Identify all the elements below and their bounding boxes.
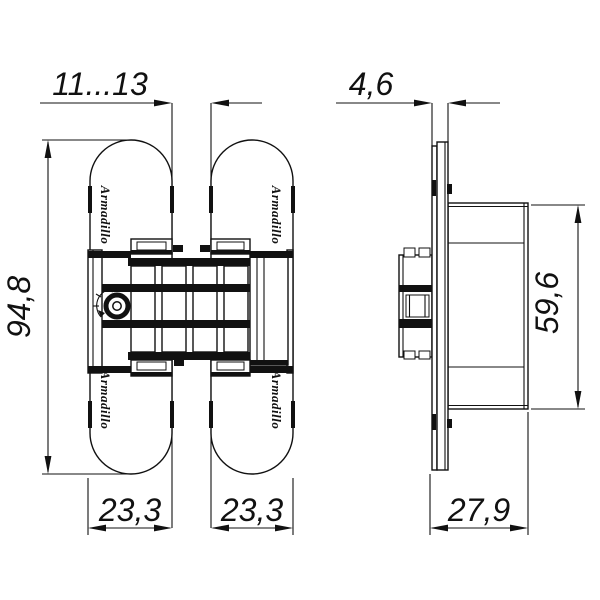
dim-label-plate-thickness: 4,6 bbox=[349, 66, 394, 102]
dim-label-overall-height: 94,8 bbox=[1, 276, 37, 338]
plate-clip bbox=[88, 401, 92, 428]
plate-clip bbox=[432, 180, 436, 196]
plate-clip bbox=[291, 401, 295, 428]
plate-clip bbox=[447, 419, 452, 428]
plate-clip bbox=[88, 186, 92, 213]
brand-text-bottom-right: Armadillo bbox=[269, 370, 284, 430]
plate-clip bbox=[209, 401, 213, 428]
plate-clip bbox=[432, 414, 436, 430]
brand-text-bottom-left: Armadillo bbox=[98, 370, 113, 430]
side-view bbox=[399, 103, 528, 470]
dim-label-door-gap: 11...13 bbox=[52, 66, 148, 102]
technical-drawing: Armadillo Armadillo Armadillo Armadillo bbox=[0, 0, 600, 600]
front-view: Armadillo Armadillo Armadillo Armadillo bbox=[88, 103, 295, 528]
side-mechanism-block bbox=[399, 248, 432, 359]
dimension-body-height: 59,6 bbox=[529, 205, 585, 409]
dim-label-left-plate-width: 23,3 bbox=[98, 492, 161, 528]
dimension-door-gap: 11...13 bbox=[40, 66, 262, 106]
dim-label-right-plate-width: 23,3 bbox=[220, 492, 283, 528]
hinge-drawing-canvas: Armadillo Armadillo Armadillo Armadillo bbox=[0, 0, 600, 600]
plate-clip bbox=[209, 186, 213, 213]
brand-text-top-left: Armadillo bbox=[98, 185, 113, 245]
dim-label-body-depth: 27,9 bbox=[447, 492, 510, 528]
dimension-right-plate-width: 23,3 bbox=[211, 478, 293, 535]
plate-clip bbox=[170, 401, 174, 428]
dimension-plate-thickness: 4,6 bbox=[336, 66, 500, 106]
plate-clip bbox=[447, 184, 452, 194]
plate-clip bbox=[291, 186, 295, 213]
side-body bbox=[448, 203, 528, 409]
brand-text-top-right: Armadillo bbox=[269, 185, 284, 245]
plate-clip bbox=[170, 186, 174, 213]
dimension-left-plate-width: 23,3 bbox=[88, 478, 172, 535]
mechanism-right-arm bbox=[250, 253, 288, 365]
dim-label-body-height: 59,6 bbox=[529, 272, 565, 334]
